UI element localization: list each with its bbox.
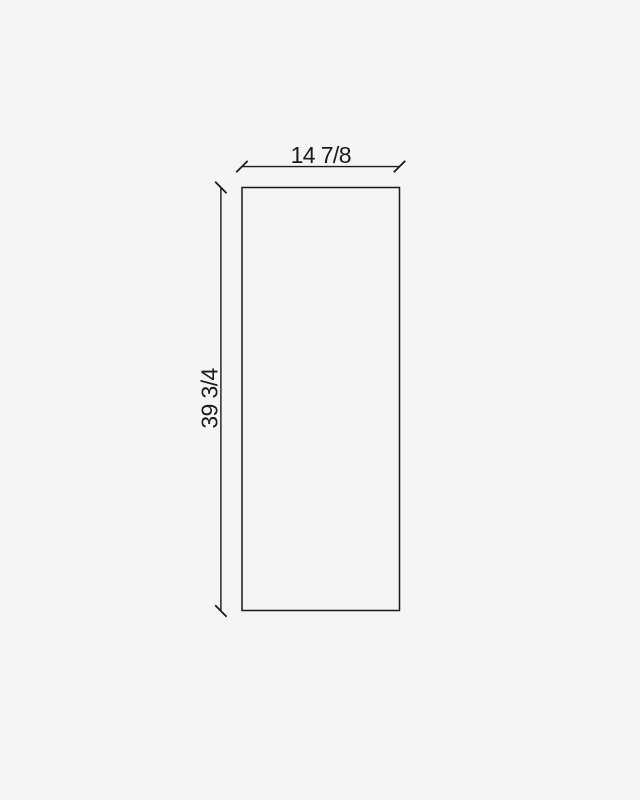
svg-text:39 3/4: 39 3/4 [196, 368, 222, 429]
svg-text:14 7/8: 14 7/8 [291, 142, 351, 168]
